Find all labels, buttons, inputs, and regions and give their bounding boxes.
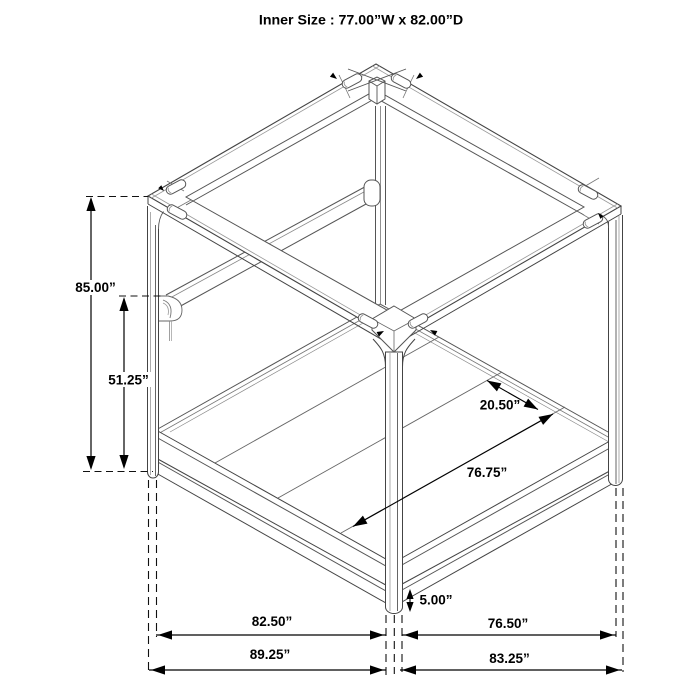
svg-text:89.25”: 89.25”	[250, 647, 291, 662]
svg-text:85.00”: 85.00”	[75, 280, 116, 295]
svg-text:20.50”: 20.50”	[480, 397, 521, 412]
svg-text:51.25”: 51.25”	[108, 372, 149, 387]
svg-text:76.50”: 76.50”	[488, 616, 529, 631]
svg-text:83.25”: 83.25”	[489, 651, 530, 666]
svg-text:5.00”: 5.00”	[419, 592, 452, 607]
svg-text:82.50”: 82.50”	[252, 614, 293, 629]
svg-text:76.75”: 76.75”	[467, 465, 508, 480]
svg-text:Inner Size : 77.00”W x 82.00”D: Inner Size : 77.00”W x 82.00”D	[259, 13, 463, 29]
